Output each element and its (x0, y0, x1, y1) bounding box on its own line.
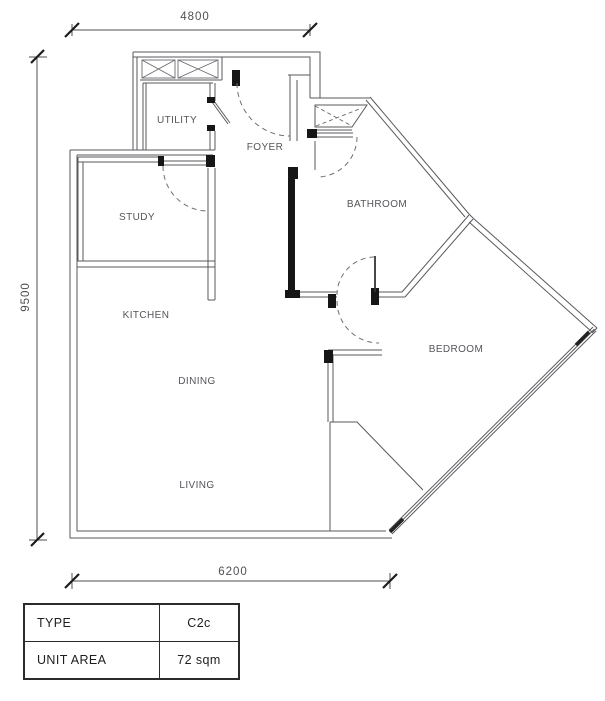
dimension-bottom-label: 6200 (218, 566, 248, 578)
study-top-wall (78, 157, 160, 162)
bathroom-chamfer-wall (402, 215, 473, 297)
dimension-ticks (31, 23, 397, 588)
niche-door-jamb (307, 129, 317, 138)
solid-walls-and-jambs (158, 70, 379, 363)
entry-jamb (232, 70, 240, 86)
dim-line-top (72, 24, 310, 36)
bedroom-window-glazing (389, 327, 596, 534)
utility-door-leaf (212, 101, 230, 124)
foyer-jamb (288, 167, 298, 179)
study-door-jamb-left (158, 156, 164, 166)
window-stub-top (576, 332, 589, 345)
kitchen-partition-wall (208, 168, 215, 300)
study-door-leaf (164, 161, 206, 165)
bathroom-door-swing-arc (337, 257, 375, 295)
shaft-box-1-cross-icon (142, 60, 175, 78)
utility-door-jamb-bottom (207, 125, 215, 131)
room-label-utility: UTILITY (157, 115, 197, 126)
bedroom-corner-notch (330, 422, 423, 490)
shaft-box-2-cross-icon (178, 60, 218, 78)
utility-door-jamb-top (207, 97, 215, 103)
diagonal-jog (469, 214, 473, 218)
diagonal-wall-lower (469, 218, 597, 332)
entry-door-swing-arc (237, 83, 290, 136)
bathroom-left-wall-solid (288, 179, 295, 297)
window-end-stubs (390, 332, 589, 532)
study-door-jamb-right (206, 155, 215, 167)
room-label-study: STUDY (119, 212, 155, 223)
utility-left-wall (143, 83, 146, 150)
table-row-type-label: TYPE (25, 605, 160, 642)
bathroom-bottom-wall-right (379, 292, 405, 297)
room-label-bedroom: BEDROOM (429, 344, 483, 355)
room-label-bathroom: BATHROOM (347, 199, 407, 210)
bedroom-top-wall (328, 350, 382, 355)
left-bottom-wall-outer (70, 150, 392, 538)
study-left-wall (78, 157, 83, 261)
dimension-left-label: 9500 (20, 282, 32, 312)
unit-info-table: TYPE C2c UNIT AREA 72 sqm (23, 603, 240, 680)
room-label-kitchen: KITCHEN (123, 310, 170, 321)
study-door-swing-arc (163, 166, 208, 211)
top-left-connector (70, 150, 215, 155)
floorplan-sheet: 4800 9500 6200 UTILITY FOYER STUDY BATHR… (0, 0, 605, 701)
room-label-living: LIVING (179, 480, 214, 491)
utility-block-left-wall (133, 52, 137, 150)
bedroom-door-swing-arc (337, 301, 379, 343)
room-label-dining: DINING (178, 376, 215, 387)
table-row-area-label: UNIT AREA (25, 642, 160, 679)
niche-door-swing-arc (317, 137, 357, 177)
bathroom-door-jamb-left (328, 294, 336, 308)
bedroom-left-wall (328, 355, 333, 422)
table-row-type-value: C2c (160, 605, 238, 642)
bathroom-wall-foot (285, 290, 300, 298)
dimension-top-label: 4800 (180, 11, 210, 23)
bedroom-wall-jamb (324, 350, 333, 363)
entry-door-leaf (317, 133, 353, 137)
table-row-area-value: 72 sqm (160, 642, 238, 679)
room-label-foyer: FOYER (247, 142, 283, 153)
study-bottom-wall (77, 261, 215, 267)
floorplan-drawing: 4800 9500 6200 UTILITY FOYER STUDY BATHR… (0, 0, 605, 600)
foyer-right-wall (290, 75, 297, 141)
utility-right-wall (210, 83, 215, 150)
